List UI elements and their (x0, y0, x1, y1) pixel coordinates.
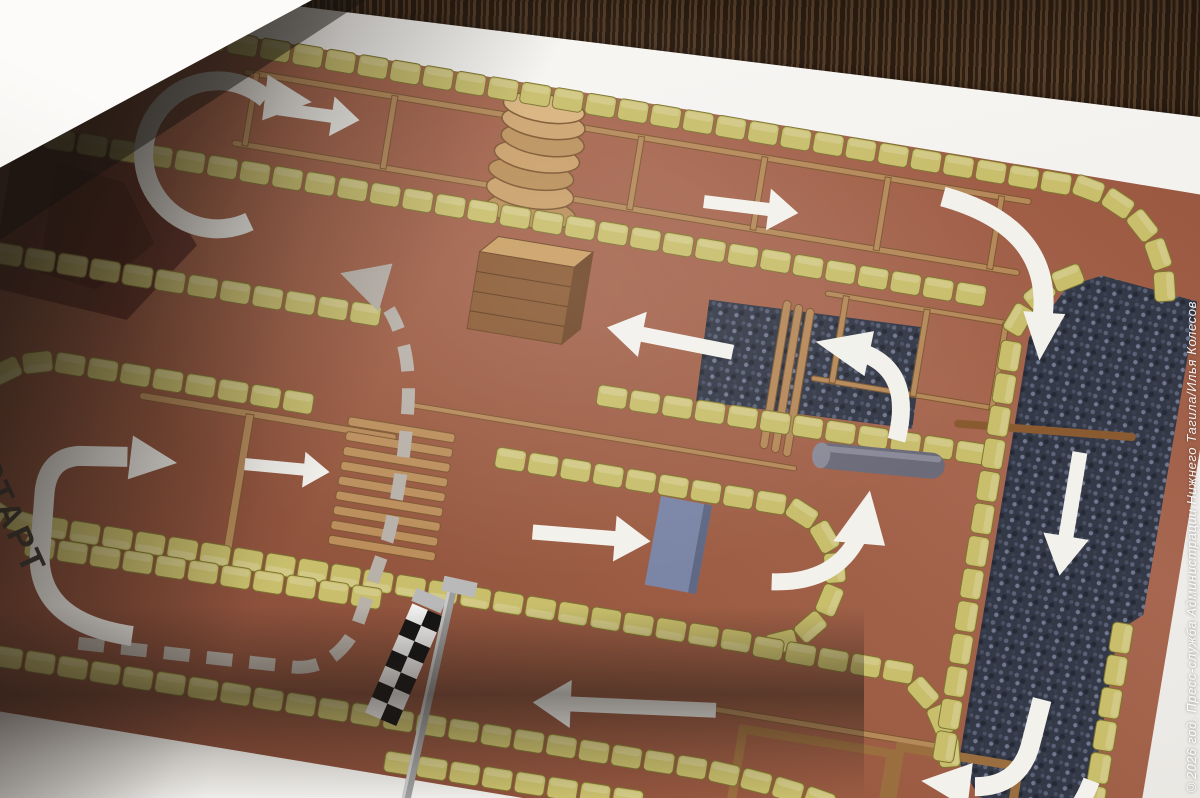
printed-sheet: СТАРТ (0, 0, 1200, 798)
photo: СТАРТ ©2026 год. Пресс-служба Администра… (0, 0, 1200, 798)
track-map: СТАРТ (0, 0, 1200, 798)
plank-stack (467, 234, 593, 347)
